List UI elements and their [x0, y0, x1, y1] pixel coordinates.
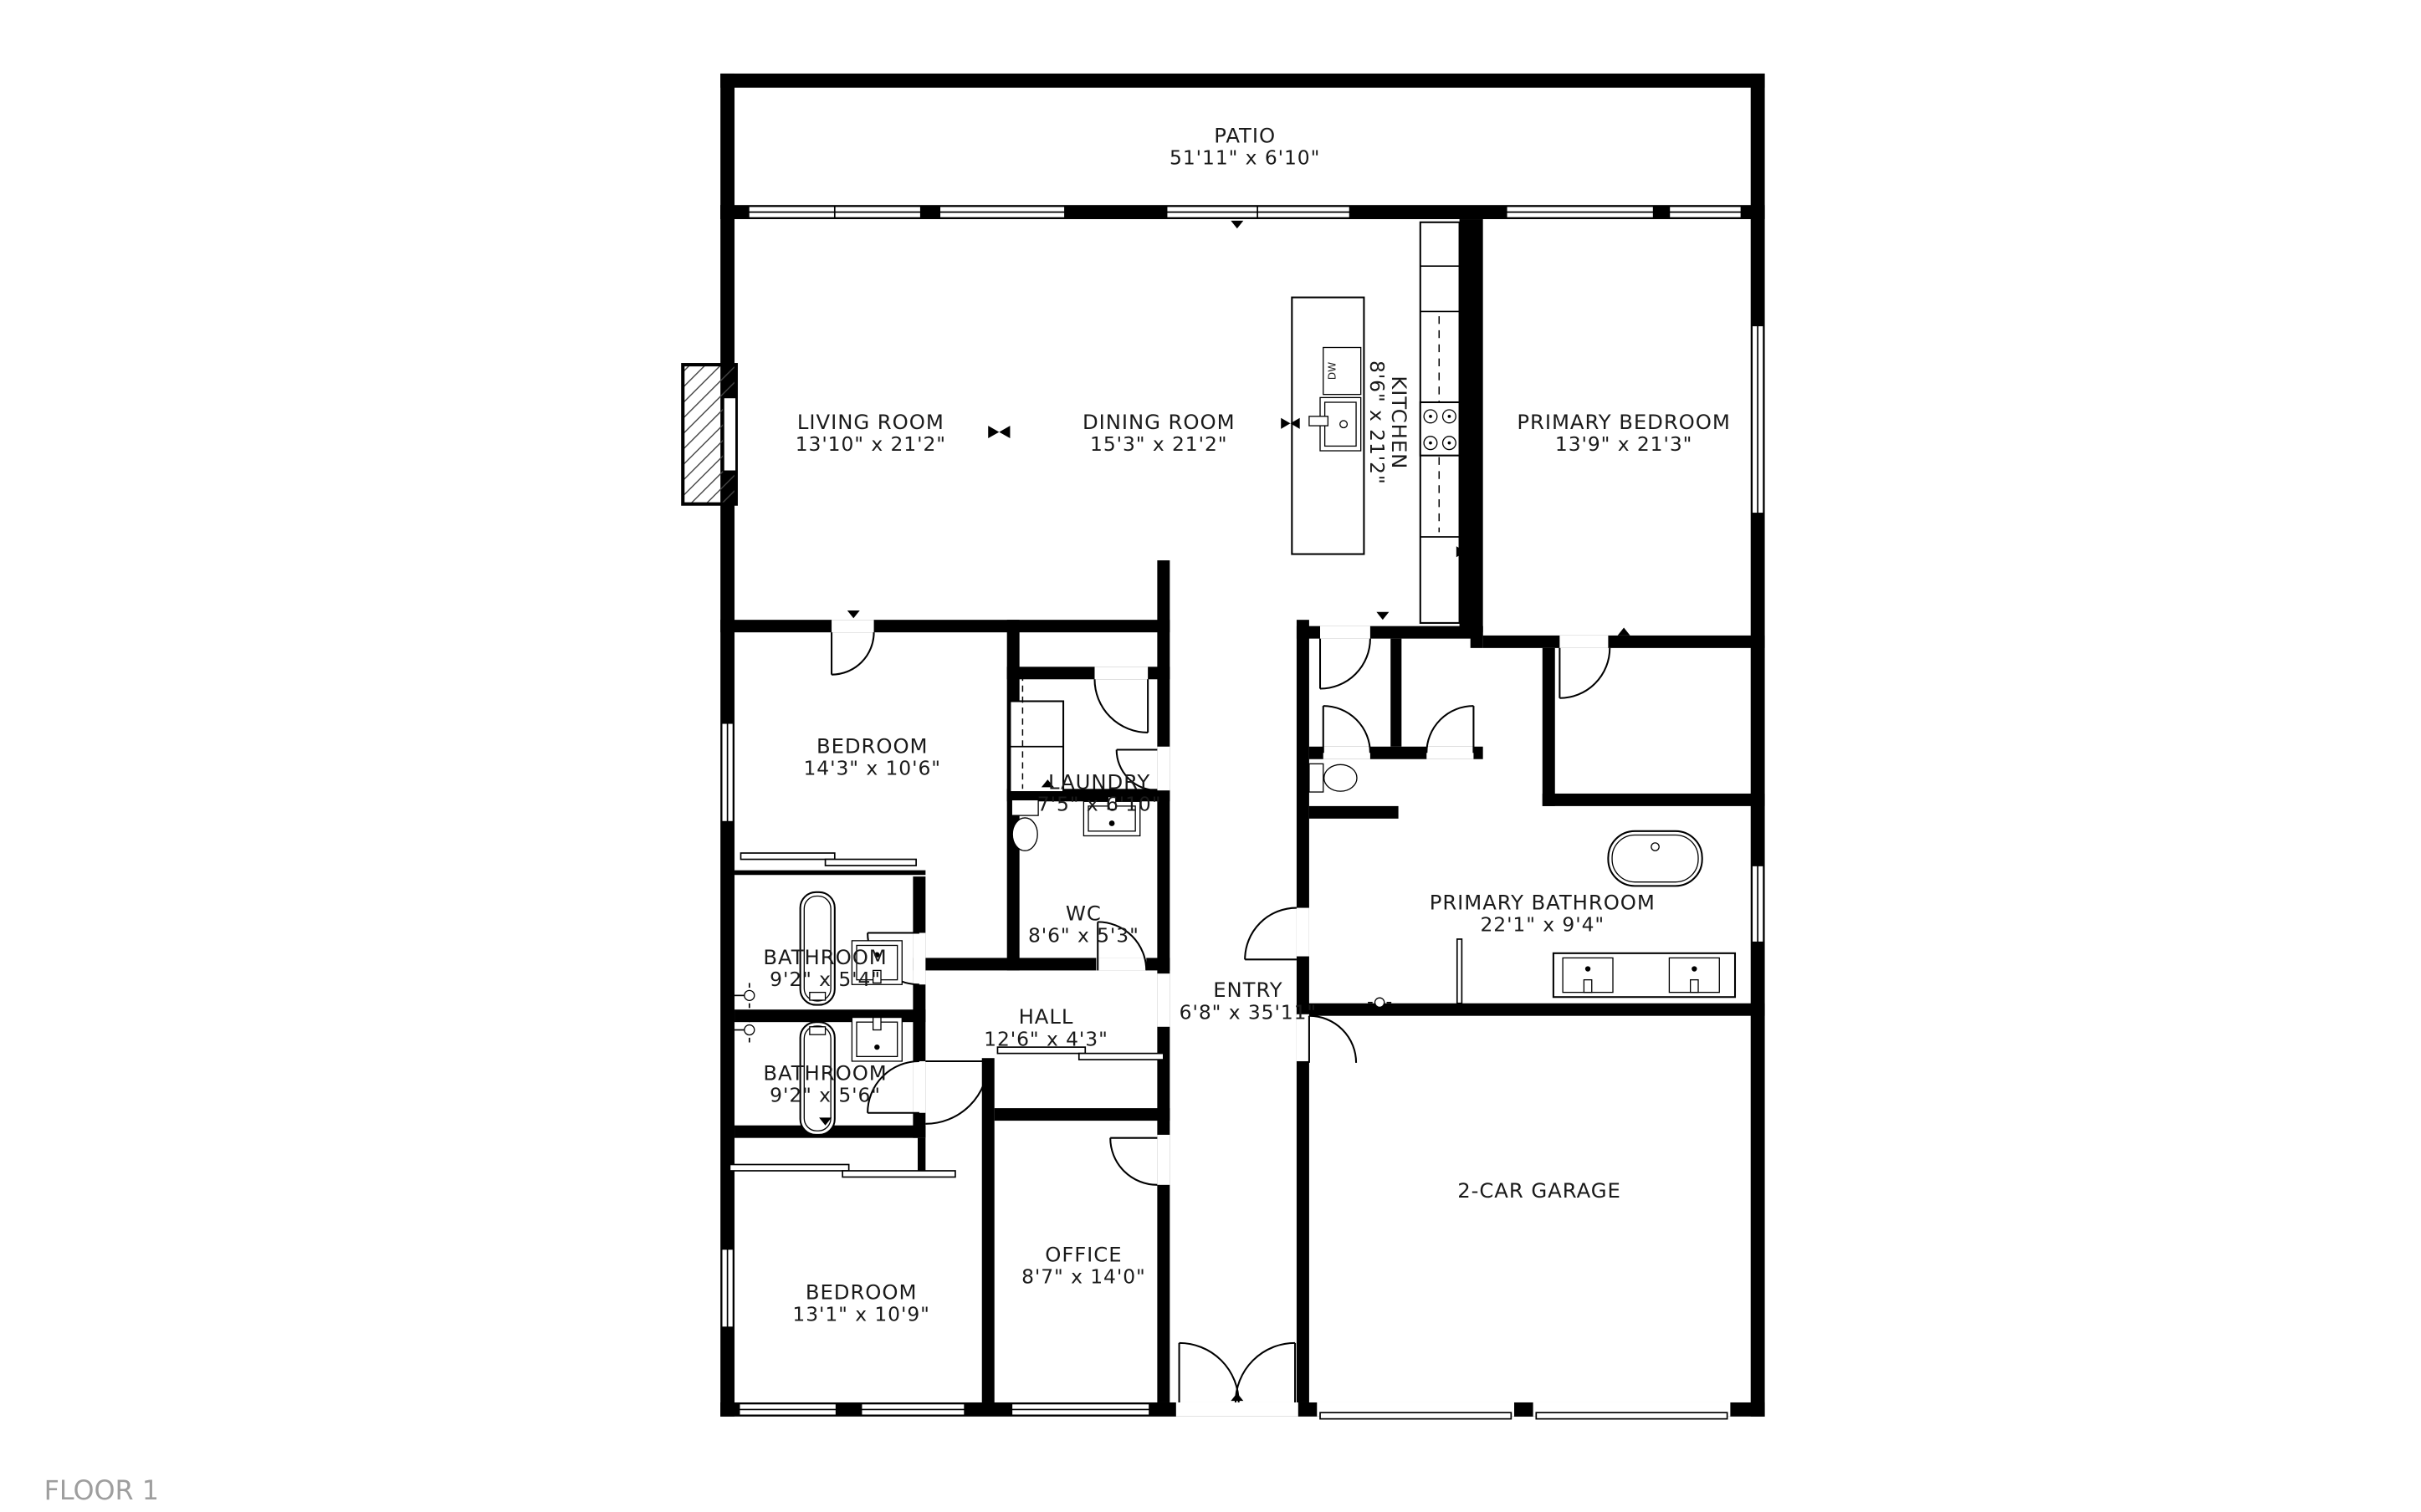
front-door-opening [1176, 1402, 1298, 1417]
wall [720, 74, 734, 219]
wall-primary-closet-bottom [1543, 794, 1765, 806]
primary-bathtub [1608, 831, 1702, 886]
room-dims-patio: 51'11" x 6'10" [1170, 146, 1320, 170]
window [1752, 866, 1763, 942]
room-label-bedroom-bottom: BEDROOM [806, 1280, 918, 1304]
garage-door-pier [1514, 1402, 1533, 1417]
opening [1297, 908, 1309, 957]
wall-closet-divider [1390, 639, 1401, 747]
floor-plan-drawing: DW [0, 0, 2421, 1512]
room-label-bathroom-lower: BATHROOM [763, 1060, 887, 1085]
room-dims-primary-bathroom: 22'1" x 9'4" [1480, 913, 1605, 937]
wall-bedroom-office [982, 1058, 995, 1402]
wall-office-top [995, 1108, 1170, 1121]
door [925, 1061, 988, 1124]
opening [1323, 747, 1370, 759]
room-dims-office: 8'7" x 14'0" [1021, 1265, 1146, 1289]
wall-closet-line [734, 871, 925, 876]
room-dims-living-room: 13'10" x 21'2" [796, 432, 946, 456]
front-door-left [1180, 1343, 1239, 1402]
section-marker-icon [988, 426, 1010, 438]
wall-living-bottom [720, 620, 1170, 632]
opening [1094, 667, 1148, 679]
floor-title: FLOOR 1 [44, 1474, 159, 1506]
room-labels: PATIO 51'11" x 6'10" LIVING ROOM 13'10" … [763, 123, 1730, 1326]
front-door-right [1236, 1343, 1295, 1402]
window [722, 1249, 734, 1328]
room-label-living-room: LIVING ROOM [797, 410, 944, 434]
door [1110, 1138, 1157, 1185]
room-label-bathroom-upper: BATHROOM [763, 945, 887, 969]
opening [1096, 958, 1146, 970]
bathroom-sink [852, 1018, 902, 1061]
room-label-patio: PATIO [1214, 123, 1276, 147]
dimension-markers [819, 221, 1630, 1401]
room-dims-wc: 8'6" x 5'3" [1028, 924, 1139, 948]
room-dims-primary-bedroom: 13'9" x 21'3" [1555, 432, 1692, 456]
dim-arrow-icon [1618, 628, 1630, 636]
primary-vanity [1553, 953, 1735, 997]
window [1507, 207, 1654, 218]
room-dims-bedroom-bottom: 13'1" x 10'9" [792, 1303, 929, 1326]
window [1669, 207, 1741, 218]
dim-arrow-icon [1231, 221, 1243, 228]
room-dims-laundry: 7'5" x 6'10" [1037, 793, 1162, 816]
room-dims-bedroom-top: 14'3" x 10'6" [804, 756, 941, 779]
door [1245, 908, 1297, 960]
window [722, 723, 734, 822]
opening [913, 1061, 925, 1113]
window [1167, 207, 1350, 218]
room-label-primary-bathroom: PRIMARY BATHROOM [1430, 890, 1656, 914]
room-label-hall: HALL [1019, 1004, 1074, 1029]
stove [1420, 402, 1460, 456]
primary-shower [1368, 939, 1461, 1014]
room-label-bedroom-top: BEDROOM [816, 733, 929, 758]
room-label-laundry: LAUNDRY [1048, 769, 1150, 794]
opening [1320, 626, 1370, 639]
wall [720, 74, 1764, 88]
opening [913, 932, 925, 984]
room-label-entry: ENTRY [1213, 978, 1282, 1002]
dim-arrow-icon [847, 610, 860, 618]
opening [1157, 973, 1170, 1027]
opening [1157, 1135, 1170, 1185]
wall-toilet-nook [1309, 806, 1399, 819]
door [1094, 679, 1148, 733]
window [749, 207, 921, 218]
door [1323, 706, 1370, 753]
window [939, 207, 1065, 218]
wall [1751, 74, 1765, 219]
opening [832, 620, 874, 632]
room-label-office: OFFICE [1045, 1243, 1122, 1267]
room-dims-entry: 6'8" x 35'11" [1180, 1000, 1317, 1024]
room-dims-bathroom-lower: 9'2" x 5'6" [770, 1084, 881, 1107]
window [1752, 325, 1763, 513]
room-dims-bathroom-upper: 9'2" x 5'4" [770, 968, 881, 991]
garage-door-panel [1320, 1412, 1511, 1418]
room-label-wc: WC [1066, 902, 1102, 926]
opening [1559, 636, 1608, 648]
kitchen-counter [1420, 222, 1460, 623]
fixtures: DW [683, 222, 1735, 1135]
window [1011, 1403, 1149, 1415]
room-label-dining-room: DINING ROOM [1083, 410, 1236, 434]
door [832, 632, 874, 675]
room-label-kitchen: KITCHEN [1387, 375, 1411, 469]
wall-primary-closet-left [1543, 648, 1555, 806]
garage-door-panel [1536, 1412, 1727, 1418]
wall-primary-bedroom-bottom [1483, 636, 1765, 648]
room-label-primary-bedroom: PRIMARY BEDROOM [1517, 410, 1730, 434]
wall-garage-top [1297, 1004, 1765, 1016]
floor-plan-page: DW [0, 0, 2421, 1512]
primary-toilet [1309, 764, 1357, 792]
sliding-door [741, 853, 917, 866]
window [862, 1403, 965, 1415]
window [740, 1403, 837, 1415]
room-dims-hall: 12'6" x 4'3" [984, 1027, 1108, 1050]
room-label-garage: 2-CAR GARAGE [1457, 1178, 1621, 1203]
wall-jog [1471, 626, 1483, 648]
kitchen-island: DW [1292, 298, 1364, 554]
room-dims-dining-room: 15'3" x 21'2" [1090, 432, 1227, 456]
dim-arrow-icon [1376, 612, 1389, 620]
door [1320, 639, 1370, 689]
fireplace [683, 365, 736, 504]
door [1426, 706, 1473, 753]
opening [1426, 747, 1473, 759]
windows [722, 207, 1763, 1416]
dim-arrow-icon [1231, 1393, 1243, 1401]
shower-valve-icon [734, 983, 755, 1008]
wall-kitchen-right [1460, 219, 1483, 632]
dishwasher-label: DW [1327, 362, 1338, 380]
wc-toilet [1011, 799, 1038, 850]
room-dims-kitchen: 8'6" x 21'2" [1365, 360, 1389, 485]
opening [1157, 747, 1170, 790]
door [1559, 648, 1610, 698]
